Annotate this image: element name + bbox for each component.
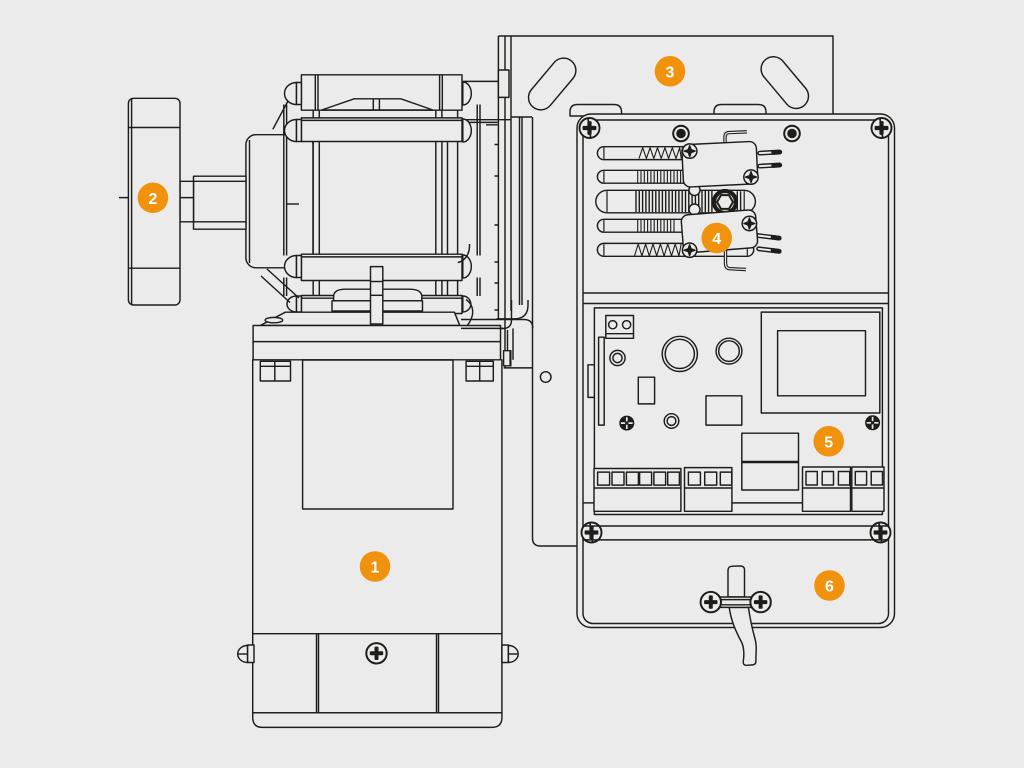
svg-text:3: 3 (666, 64, 675, 81)
svg-text:1: 1 (371, 560, 380, 577)
svg-text:4: 4 (712, 231, 721, 248)
svg-text:6: 6 (825, 579, 834, 596)
svg-text:2: 2 (148, 191, 157, 208)
svg-text:5: 5 (824, 434, 833, 451)
